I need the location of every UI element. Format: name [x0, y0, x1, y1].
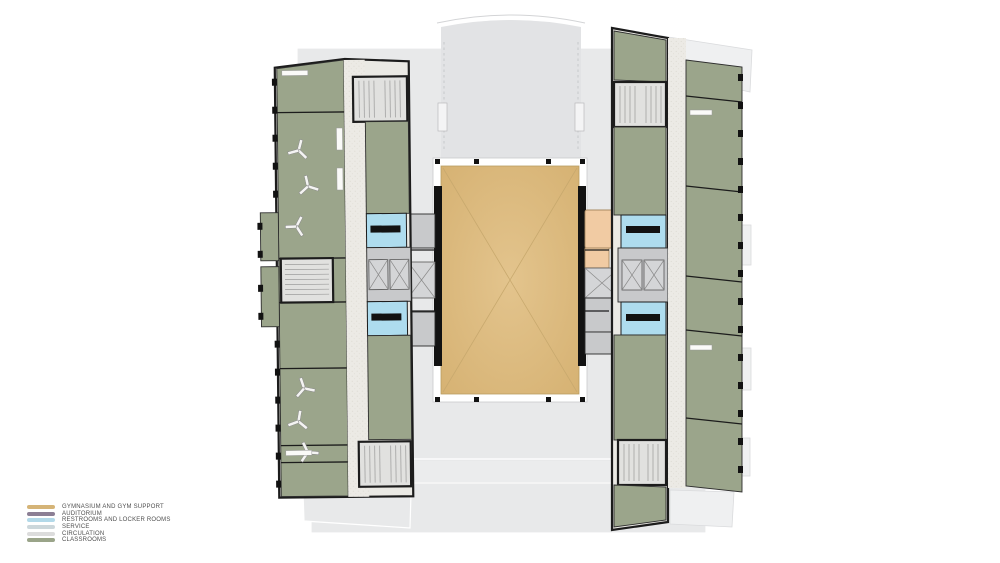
- floor-plan-drawing: [0, 0, 1000, 563]
- classroom: [614, 335, 666, 440]
- east-wing-top-stair: [614, 82, 666, 127]
- classroom: [614, 31, 666, 82]
- legend-swatch-auditorium: [27, 512, 55, 516]
- west-bump-out-2: [261, 267, 280, 327]
- legend-row: AUDITORIUM: [27, 511, 171, 518]
- legend-row: CLASSROOMS: [27, 537, 171, 544]
- west-classroom-wing: [256, 58, 414, 498]
- legend-label: SERVICE: [62, 524, 90, 530]
- legend-row: RESTROOMS AND LOCKER ROOMS: [27, 517, 171, 524]
- west-wing-top-stair: [353, 76, 407, 122]
- legend: GYMNASIUM AND GYM SUPPORT AUDITORIUM RES…: [27, 504, 171, 544]
- legend-label: RESTROOMS AND LOCKER ROOMS: [62, 517, 171, 523]
- south-east-canopy: [670, 490, 734, 527]
- east-restroom-south: [621, 302, 666, 335]
- east-wing-bottom-stair: [618, 440, 666, 485]
- east-classroom-wing: [612, 28, 743, 530]
- legend-label: CLASSROOMS: [62, 537, 106, 543]
- legend-swatch-gymnasium: [27, 505, 55, 509]
- legend-row: CIRCULATION: [27, 530, 171, 537]
- legend-label: GYMNASIUM AND GYM SUPPORT: [62, 504, 164, 510]
- floor-plan: [0, 0, 1000, 563]
- legend-swatch-classrooms: [27, 538, 55, 542]
- legend-row: SERVICE: [27, 524, 171, 531]
- classroom: [365, 121, 409, 213]
- legend-swatch-service: [27, 525, 55, 529]
- auditorium-tower: [437, 15, 585, 160]
- legend-swatch-restrooms: [27, 518, 55, 522]
- gymnasium: [433, 158, 587, 402]
- east-elevator-core: [618, 248, 668, 302]
- east-restroom-north: [621, 215, 666, 248]
- west-restroom-south: [367, 301, 407, 335]
- classroom: [368, 335, 412, 439]
- east-wing-corridor: [668, 38, 686, 488]
- west-wing-mid-stair: [281, 258, 333, 303]
- legend-label: CIRCULATION: [62, 531, 104, 537]
- legend-row: GYMNASIUM AND GYM SUPPORT: [27, 504, 171, 511]
- east-facade-columns: [738, 74, 743, 473]
- classroom: [614, 127, 666, 215]
- classrooms-east-column: [686, 60, 742, 492]
- west-restroom-north: [366, 213, 406, 247]
- classroom: [614, 485, 666, 527]
- west-elevator-core: [367, 247, 412, 301]
- west-wing-bottom-stair: [359, 441, 411, 487]
- legend-label: AUDITORIUM: [62, 511, 102, 517]
- legend-swatch-circulation: [27, 532, 55, 536]
- gym-support-room-2: [585, 248, 609, 268]
- west-bump-out-1: [260, 213, 279, 261]
